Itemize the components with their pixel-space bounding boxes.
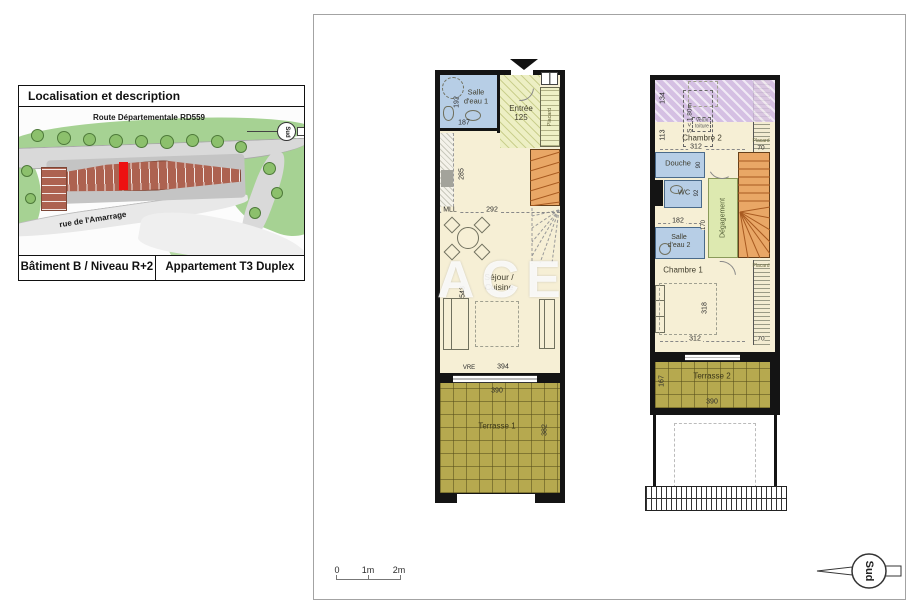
- map-compass-icon: Sud: [247, 121, 304, 143]
- tree-icon: [160, 135, 174, 149]
- terrasse-1-label: Terrasse 1: [478, 421, 515, 430]
- placard-closet: [753, 260, 770, 345]
- entrance-arrow-icon: [510, 59, 538, 70]
- dim-170: 170: [701, 220, 707, 230]
- tree-icon: [57, 131, 71, 145]
- chambre-2-label: Chambre 2: [682, 133, 722, 142]
- terrace-opening: [457, 494, 535, 503]
- location-description-box: Localisation et description: [18, 85, 305, 281]
- salle-eau-2-label: Salle: [671, 234, 687, 241]
- dim-70: 70: [757, 336, 764, 343]
- dim-292: 292: [484, 207, 500, 214]
- tree-icon: [263, 162, 276, 175]
- location-box-title: Localisation et description: [19, 86, 304, 107]
- map-compass-label: Sud: [284, 126, 290, 137]
- dining-table-icon: [457, 227, 479, 249]
- placard-label: Placard: [753, 263, 770, 269]
- vre-label: VRE: [463, 365, 475, 371]
- watermark: ACE: [437, 250, 568, 310]
- dim-134: 134: [660, 92, 667, 104]
- road-label: Route Départementale RD559: [49, 113, 249, 122]
- building-wing: [41, 167, 67, 211]
- stairs: [738, 152, 770, 258]
- placard-label: Placard: [753, 138, 770, 144]
- low-ceiling-overlay: [753, 80, 770, 122]
- stairs: [530, 149, 560, 206]
- tree-icon: [109, 134, 123, 148]
- entree-label: Entrée: [509, 104, 533, 113]
- window: [453, 375, 537, 383]
- scale-0: 0: [334, 565, 339, 575]
- void-dashed-outline: [674, 423, 756, 493]
- plan-document-page: ACE Placard: [0, 0, 920, 613]
- sink-icon: [659, 243, 671, 255]
- mll-label: MLL: [441, 207, 459, 214]
- void-zone: [653, 415, 777, 486]
- dim-90: 90: [696, 162, 702, 169]
- dim-390: 390: [491, 388, 503, 395]
- chambre-1-label: Chambre 1: [663, 265, 703, 274]
- highlighted-unit-marker: [119, 162, 128, 190]
- building-label: Bâtiment B / Niveau R+2: [19, 256, 156, 280]
- location-box-footer: Bâtiment B / Niveau R+2 Appartement T3 D…: [19, 255, 304, 280]
- dim-187: 187: [458, 120, 470, 127]
- douche-label: Douche: [665, 160, 691, 169]
- tree-icon: [186, 134, 199, 147]
- tree-icon: [271, 187, 283, 199]
- terrasse-2-label: Terrasse 2: [693, 371, 730, 380]
- placard-label: Placard: [547, 108, 553, 127]
- south-compass-icon: Sud: [813, 548, 905, 594]
- tree-icon: [83, 133, 96, 146]
- tree-icon: [135, 135, 148, 148]
- tree-icon: [31, 129, 44, 142]
- terrasse-1: [440, 383, 560, 493]
- dim-318: 318: [702, 302, 709, 314]
- degagement-label: Dégagement: [720, 198, 727, 238]
- dim-312: 312: [687, 336, 703, 343]
- interior-wall: [440, 128, 500, 131]
- dim-167: 167: [659, 375, 666, 387]
- scale-2m: 2m: [393, 565, 406, 575]
- dim-113: 113: [660, 129, 667, 140]
- scale-1m: 1m: [362, 565, 375, 575]
- window: [541, 72, 558, 85]
- wc-label: WC: [678, 189, 691, 198]
- dim-390: 390: [706, 399, 718, 406]
- dim-70: 70: [757, 145, 764, 152]
- plan-sheet: [313, 14, 906, 600]
- dim-182: 182: [670, 218, 686, 225]
- toilet-icon: [443, 106, 454, 121]
- tree-icon: [249, 207, 261, 219]
- dim-312: 312: [688, 144, 704, 151]
- tree-icon: [235, 141, 247, 153]
- tree-icon: [21, 165, 33, 177]
- floor-plan-level-2: S < 1.80m Veluxtoiture 134 113 Chambre 2…: [650, 75, 780, 486]
- window: [685, 354, 740, 361]
- dim-192: 192: [454, 96, 461, 108]
- dim-382: 382: [542, 424, 549, 436]
- tree-icon: [25, 193, 36, 204]
- pergola-railing: [645, 486, 787, 511]
- dim-92: 92: [694, 190, 700, 197]
- kitchen-sink-icon: [441, 170, 453, 187]
- door-leaf: [655, 180, 663, 206]
- tree-icon: [211, 135, 224, 148]
- dim-285: 285: [459, 168, 466, 180]
- site-map: Route Départementale RD559 rue de l'Amar…: [19, 107, 304, 255]
- dim-394: 394: [495, 364, 511, 371]
- compass-label: Sud: [863, 561, 875, 582]
- apartment-label: Appartement T3 Duplex: [156, 256, 304, 280]
